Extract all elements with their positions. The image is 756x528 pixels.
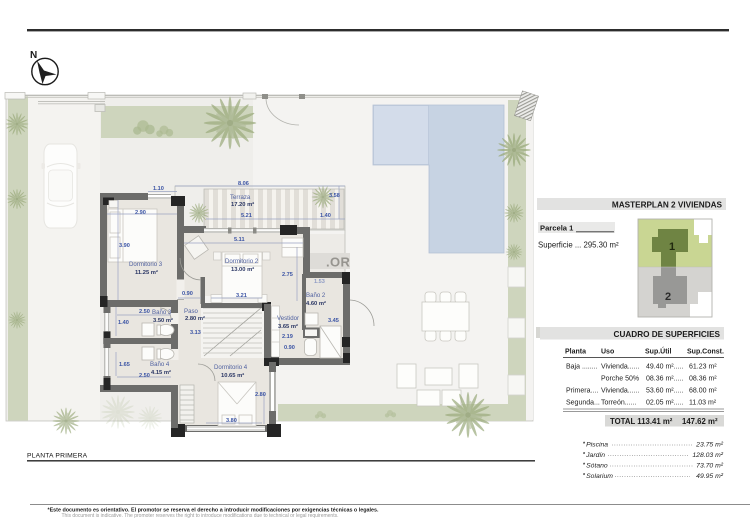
svg-text:0.90: 0.90 — [284, 345, 295, 351]
svg-text:1.10: 1.10 — [153, 186, 164, 192]
svg-text:1.40: 1.40 — [320, 213, 331, 219]
svg-text:1.40: 1.40 — [118, 320, 129, 326]
svg-text:0.90: 0.90 — [182, 291, 193, 297]
svg-text:Baño 4: Baño 4 — [150, 361, 170, 368]
svg-text:Uso: Uso — [601, 349, 614, 356]
svg-text:1.65: 1.65 — [119, 362, 130, 368]
svg-text:Baja ........: Baja ........ — [566, 364, 598, 371]
svg-text:2.75: 2.75 — [282, 272, 293, 278]
svg-text:3.65 m²: 3.65 m² — [278, 323, 298, 330]
svg-text:Planta: Planta — [565, 349, 586, 356]
svg-text:23.75 m²: 23.75 m² — [695, 442, 724, 449]
svg-text:*Sótano: *Sótano — [583, 463, 608, 470]
svg-text:02.05 m².....: 02.05 m²..... — [646, 400, 683, 407]
svg-text:TOTAL 113.41 m²: TOTAL 113.41 m² — [610, 417, 673, 426]
svg-text:5.11: 5.11 — [234, 237, 245, 243]
svg-text:3.45: 3.45 — [328, 318, 339, 324]
svg-text:2.90: 2.90 — [135, 210, 146, 216]
svg-text:Baño 3: Baño 3 — [152, 309, 172, 316]
svg-text:Porche 50%: Porche 50% — [601, 376, 639, 383]
svg-text:3.13: 3.13 — [190, 330, 201, 336]
svg-text:1.53: 1.53 — [314, 279, 325, 285]
svg-text:2.50: 2.50 — [139, 309, 150, 315]
svg-text:*Solarium: *Solarium — [583, 473, 613, 480]
svg-text:53.60 m².....: 53.60 m²..... — [646, 388, 683, 395]
svg-text:*Piscina: *Piscina — [583, 442, 608, 449]
svg-text:Dormitorio 4: Dormitorio 4 — [214, 364, 248, 371]
svg-text:Parcela 1: Parcela 1 — [540, 224, 574, 233]
svg-text:Paso: Paso — [184, 308, 199, 315]
svg-text:8.06: 8.06 — [238, 181, 249, 187]
svg-text:3.58: 3.58 — [329, 193, 340, 199]
svg-text:49.95 m²: 49.95 m² — [696, 473, 724, 480]
svg-text:Terraza: Terraza — [230, 194, 251, 201]
svg-text:Vivienda......: Vivienda...... — [601, 364, 639, 371]
svg-text:11.25 m²: 11.25 m² — [135, 269, 158, 276]
svg-text:4.60 m²: 4.60 m² — [306, 300, 326, 307]
svg-text:MASTERPLAN 2 VIVIENDAS: MASTERPLAN 2 VIVIENDAS — [612, 201, 723, 210]
svg-text:2.80: 2.80 — [255, 392, 266, 398]
svg-text:68.00 m²: 68.00 m² — [689, 388, 717, 395]
svg-text:Sup.Útil: Sup.Útil — [645, 347, 671, 356]
svg-text:73.70 m²: 73.70 m² — [696, 463, 724, 470]
svg-text:This document is indicative. T: This document is indicative. The promote… — [62, 513, 339, 519]
svg-text:4.15 m²: 4.15 m² — [151, 369, 171, 376]
svg-text:3.21: 3.21 — [236, 293, 247, 299]
svg-text:08.36 m²: 08.36 m² — [689, 376, 717, 383]
svg-text:CUADRO DE SUPERFICIES: CUADRO DE SUPERFICIES — [614, 330, 721, 339]
svg-text:2.19: 2.19 — [282, 334, 293, 340]
svg-text:128.03 m²: 128.03 m² — [692, 452, 723, 459]
svg-text:13.00 m²: 13.00 m² — [231, 266, 254, 273]
svg-text:Vivienda......: Vivienda...... — [601, 388, 639, 395]
svg-text:10.65 m²: 10.65 m² — [221, 372, 244, 379]
svg-text:*Jardín: *Jardín — [583, 452, 605, 459]
svg-text:Superficie ... 295.30 m²: Superficie ... 295.30 m² — [538, 241, 619, 250]
svg-text:.OR: .OR — [326, 255, 351, 270]
svg-text:Primera....: Primera.... — [566, 388, 598, 395]
svg-text:Dormitorio 3: Dormitorio 3 — [129, 261, 163, 268]
svg-text:147.62 m²: 147.62 m² — [682, 417, 718, 426]
svg-text:08.36 m².....: 08.36 m²..... — [646, 376, 683, 383]
svg-text:PLANTA PRIMERA: PLANTA PRIMERA — [27, 453, 88, 460]
svg-text:1: 1 — [669, 241, 675, 253]
svg-text:3.80: 3.80 — [226, 418, 237, 424]
svg-text:Segunda...: Segunda... — [566, 400, 600, 407]
svg-text:3.90: 3.90 — [119, 243, 130, 249]
svg-text:Sup.Const.: Sup.Const. — [687, 349, 724, 356]
svg-text:2.50: 2.50 — [139, 373, 150, 379]
svg-text:49.40 m².....: 49.40 m²..... — [646, 364, 683, 371]
svg-text:Torreón......: Torreón...... — [601, 400, 636, 407]
svg-text:11.03 m²: 11.03 m² — [689, 400, 717, 407]
svg-text:N: N — [30, 50, 37, 61]
svg-text:61.23 m²: 61.23 m² — [689, 364, 717, 371]
svg-text:Dormitorio 2: Dormitorio 2 — [225, 258, 259, 265]
svg-text:2.80 m²: 2.80 m² — [185, 315, 205, 322]
svg-text:Vestidor: Vestidor — [277, 315, 299, 322]
svg-text:2: 2 — [665, 291, 671, 303]
svg-text:Baño 2: Baño 2 — [306, 292, 326, 299]
svg-text:3.50 m²: 3.50 m² — [153, 317, 173, 324]
svg-text:5.21: 5.21 — [241, 213, 252, 219]
svg-text:17.20 m²: 17.20 m² — [231, 201, 254, 208]
